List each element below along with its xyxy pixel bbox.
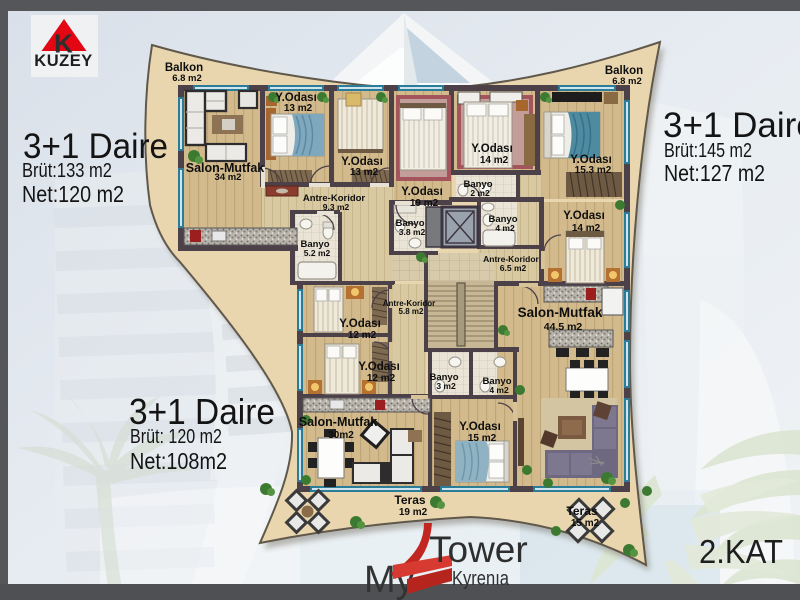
svg-text:30m2: 30m2 bbox=[328, 430, 354, 441]
svg-text:9.3 m2: 9.3 m2 bbox=[323, 202, 350, 212]
svg-text:5.2 m2: 5.2 m2 bbox=[304, 248, 331, 258]
svg-text:Teras: Teras bbox=[394, 493, 425, 507]
svg-text:4 m2: 4 m2 bbox=[489, 385, 509, 395]
svg-text:3.8 m2: 3.8 m2 bbox=[399, 227, 426, 237]
svg-text:34 m2: 34 m2 bbox=[215, 172, 242, 183]
svg-text:Brüt:145 m2: Brüt:145 m2 bbox=[664, 140, 752, 162]
svg-text:KUZEY: KUZEY bbox=[34, 52, 92, 70]
svg-text:Y.Odası: Y.Odası bbox=[471, 143, 513, 155]
svg-text:Brüt:133 m2: Brüt:133 m2 bbox=[22, 160, 112, 182]
svg-text:Y.Odası: Y.Odası bbox=[563, 210, 605, 222]
svg-text:6.5 m2: 6.5 m2 bbox=[500, 263, 527, 273]
svg-text:13 m2: 13 m2 bbox=[350, 167, 379, 178]
svg-text:Teras: Teras bbox=[566, 504, 597, 518]
svg-text:15.3 m2: 15.3 m2 bbox=[575, 165, 612, 176]
svg-text:12 m2: 12 m2 bbox=[367, 373, 396, 384]
svg-text:19 m2: 19 m2 bbox=[399, 507, 428, 518]
svg-text:14 m2: 14 m2 bbox=[480, 155, 509, 166]
svg-text:6.8 m2: 6.8 m2 bbox=[172, 73, 202, 84]
svg-text:15 m2: 15 m2 bbox=[571, 518, 600, 529]
svg-text:Y.Odası: Y.Odası bbox=[459, 421, 501, 433]
svg-text:Salon-Mutfak: Salon-Mutfak bbox=[299, 415, 378, 429]
svg-text:6.8 m2: 6.8 m2 bbox=[612, 76, 642, 87]
svg-text:12 m2: 12 m2 bbox=[348, 330, 377, 341]
svg-text:19 m2: 19 m2 bbox=[410, 198, 439, 209]
svg-text:Salon-Mutfak: Salon-Mutfak bbox=[518, 305, 603, 320]
svg-text:Y.Odası: Y.Odası bbox=[339, 318, 381, 330]
svg-text:Kyrenıa: Kyrenıa bbox=[452, 568, 510, 590]
svg-text:13 m2: 13 m2 bbox=[284, 103, 313, 114]
svg-text:15 m2: 15 m2 bbox=[468, 433, 497, 444]
svg-text:14 m2: 14 m2 bbox=[572, 223, 601, 234]
svg-text:Net:127 m2: Net:127 m2 bbox=[664, 160, 765, 186]
svg-text:Brüt: 120 m2: Brüt: 120 m2 bbox=[130, 426, 222, 448]
svg-text:Net:120 m2: Net:120 m2 bbox=[22, 181, 124, 207]
svg-text:5.8 m2: 5.8 m2 bbox=[399, 307, 424, 316]
svg-text:4 m2: 4 m2 bbox=[495, 223, 515, 233]
svg-text:Tower: Tower bbox=[429, 529, 528, 570]
svg-text:3 m2: 3 m2 bbox=[436, 381, 456, 391]
svg-text:2 m2: 2 m2 bbox=[470, 188, 490, 198]
svg-text:Y.Odası: Y.Odası bbox=[358, 361, 400, 373]
svg-text:Y.Odası: Y.Odası bbox=[401, 186, 443, 198]
svg-text:2.KAT: 2.KAT bbox=[699, 533, 783, 570]
svg-text:Net:108m2: Net:108m2 bbox=[130, 448, 227, 474]
svg-text:44.5 m2: 44.5 m2 bbox=[544, 321, 583, 333]
